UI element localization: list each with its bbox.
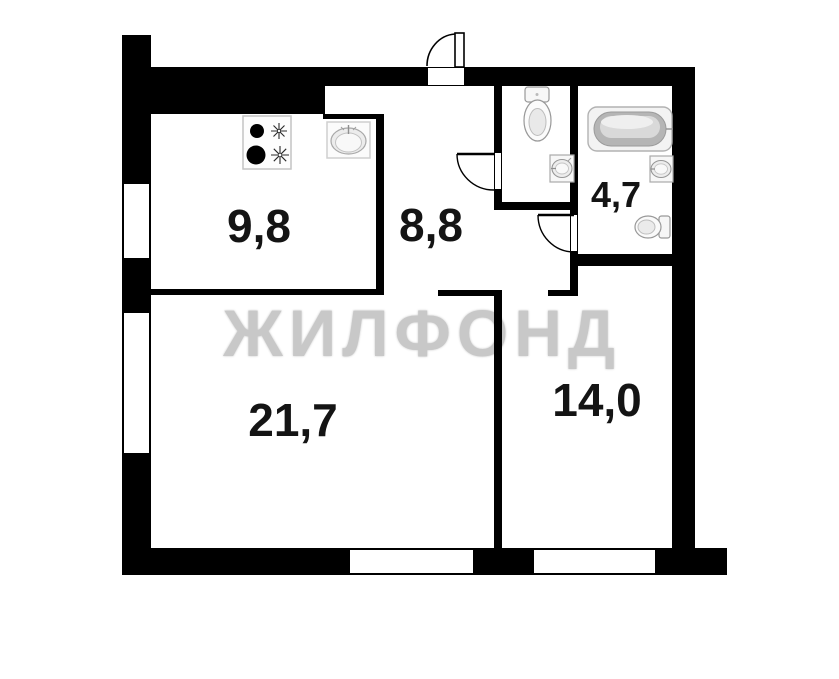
living-room-area-label: 21,7	[248, 393, 338, 447]
stove-icon	[243, 116, 291, 169]
toilet-icon	[524, 87, 551, 141]
bathroom-door-icon	[538, 215, 574, 252]
washbasin-icon	[650, 156, 673, 182]
kitchen-area-label: 9,8	[227, 199, 291, 253]
washbasin-icon	[550, 155, 574, 182]
kitchen-sink-icon	[327, 122, 370, 158]
bathtub-icon	[588, 107, 673, 151]
entrance-door-icon	[427, 33, 464, 67]
toilet-side-icon	[635, 216, 670, 238]
hallway-area-label: 8,8	[399, 198, 463, 252]
wc-door-icon	[457, 154, 494, 190]
floor-plan: ЖИЛФОНД	[0, 0, 839, 679]
bedroom-area-label: 14,0	[552, 373, 642, 427]
bathroom-area-label: 4,7	[591, 174, 641, 216]
